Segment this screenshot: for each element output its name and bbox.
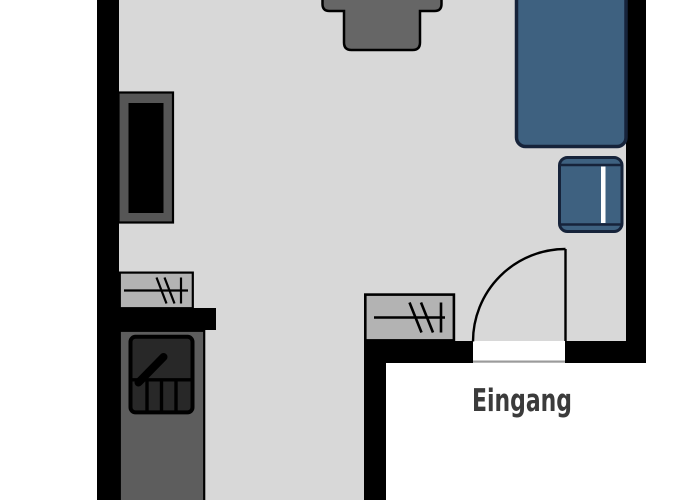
left-wall bbox=[97, 0, 119, 500]
floor-plan-svg: Eingang bbox=[0, 0, 700, 500]
bottom-wall-right-segment bbox=[565, 341, 646, 363]
side-table-stripe bbox=[601, 167, 606, 224]
corridor-wall bbox=[364, 341, 386, 500]
door-threshold-line bbox=[473, 361, 565, 363]
kitchenette bbox=[120, 331, 204, 500]
radiator-bottom bbox=[365, 295, 454, 341]
side-table-body bbox=[560, 158, 623, 232]
radiator-left bbox=[120, 273, 193, 309]
kitchen-alcove-wall bbox=[119, 308, 216, 330]
bed bbox=[517, 0, 627, 147]
floor-plan-image: Eingang bbox=[0, 0, 700, 500]
right-wall bbox=[626, 0, 646, 363]
wardrobe bbox=[119, 93, 174, 223]
bed-side-table bbox=[560, 158, 623, 232]
door-opening bbox=[473, 341, 565, 363]
wardrobe-door bbox=[129, 103, 164, 213]
entrance-label: Eingang bbox=[472, 383, 572, 419]
